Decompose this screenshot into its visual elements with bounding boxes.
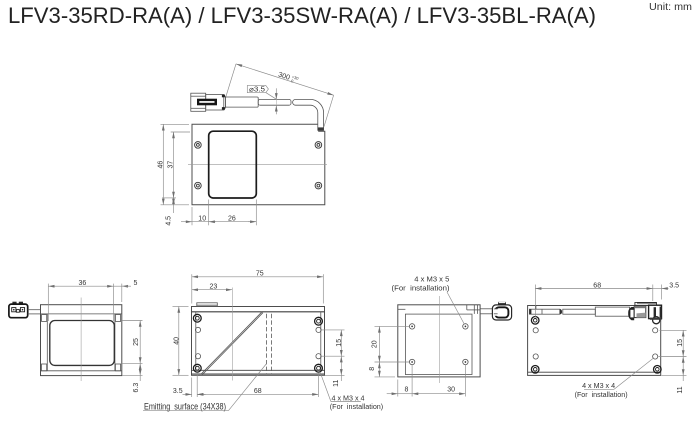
svg-text:3.5: 3.5 bbox=[173, 388, 183, 395]
svg-text:11: 11 bbox=[677, 386, 684, 393]
svg-text:Unit: mm: Unit: mm bbox=[649, 2, 692, 13]
svg-text:68: 68 bbox=[593, 282, 601, 289]
svg-text:20: 20 bbox=[371, 340, 378, 348]
svg-text:4 x M3 x 5: 4 x M3 x 5 bbox=[414, 274, 449, 283]
svg-text:6.3: 6.3 bbox=[133, 383, 140, 393]
svg-text:75: 75 bbox=[256, 271, 264, 278]
svg-text:26: 26 bbox=[228, 215, 236, 222]
svg-text:(For installation): (For installation) bbox=[392, 283, 450, 292]
svg-text:68: 68 bbox=[254, 388, 262, 395]
svg-text:40: 40 bbox=[173, 337, 180, 345]
svg-text:15: 15 bbox=[336, 339, 343, 347]
svg-text:11: 11 bbox=[333, 379, 340, 386]
svg-text:4.5: 4.5 bbox=[166, 216, 173, 226]
svg-text:8: 8 bbox=[405, 387, 409, 394]
svg-text:30: 30 bbox=[447, 387, 455, 394]
svg-text:4 x M3 x 4: 4 x M3 x 4 bbox=[582, 381, 615, 390]
svg-text:(For installation): (For installation) bbox=[575, 390, 628, 399]
svg-text:LFV3-35RD-RA(A) / LFV3-35SW-RA: LFV3-35RD-RA(A) / LFV3-35SW-RA(A) / LFV3… bbox=[8, 3, 596, 28]
svg-text:3.5: 3.5 bbox=[669, 282, 679, 289]
svg-text:15: 15 bbox=[677, 339, 684, 347]
svg-text:25: 25 bbox=[133, 338, 140, 346]
svg-text:36: 36 bbox=[79, 280, 87, 287]
svg-text:10: 10 bbox=[198, 215, 206, 222]
svg-text:5: 5 bbox=[134, 280, 138, 287]
svg-text:Emitting surface (34X38): Emitting surface (34X38) bbox=[144, 401, 226, 411]
svg-text:46: 46 bbox=[157, 161, 164, 169]
svg-text:⌀3.5: ⌀3.5 bbox=[249, 86, 265, 93]
svg-text:(For installation): (For installation) bbox=[330, 402, 383, 411]
svg-text:23: 23 bbox=[210, 283, 218, 290]
svg-text:37: 37 bbox=[168, 161, 175, 169]
svg-text:8: 8 bbox=[369, 367, 376, 371]
